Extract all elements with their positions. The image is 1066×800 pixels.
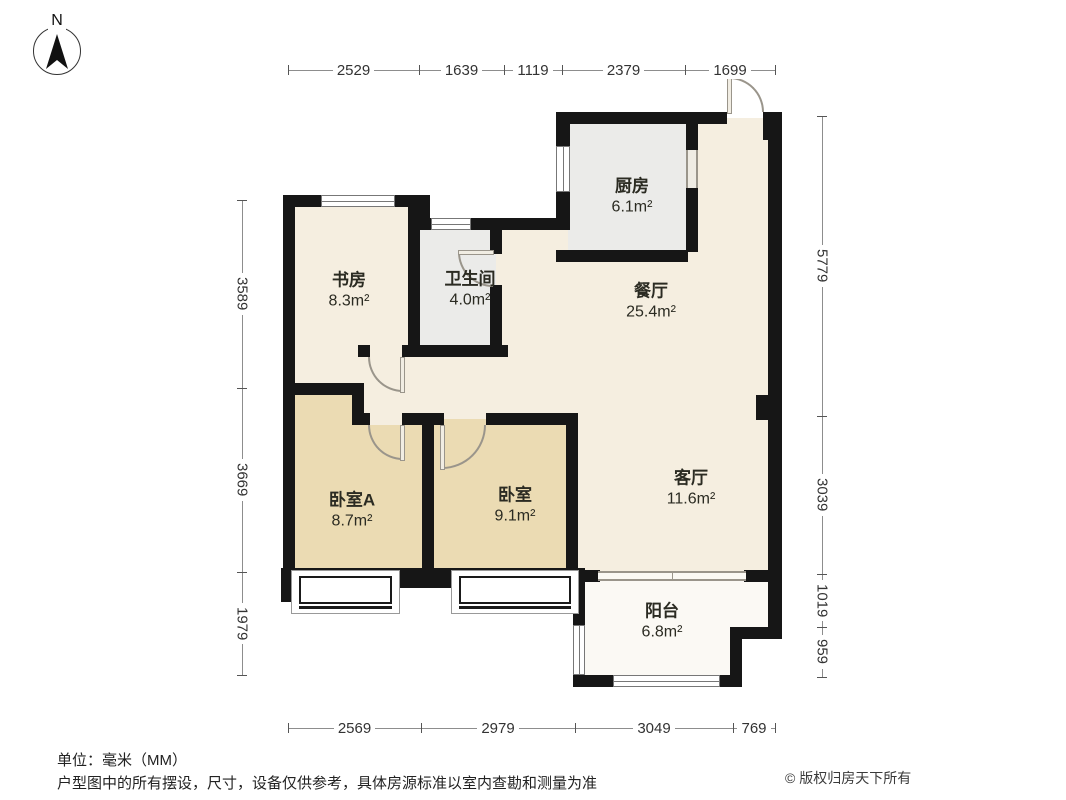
- dimension-tick: [419, 65, 420, 75]
- unit-note: 单位：毫米（MM）: [57, 749, 187, 770]
- wall-segment: [402, 345, 420, 357]
- dimension-label: 2529: [288, 62, 419, 78]
- dimension-tick: [504, 65, 505, 75]
- wall-segment: [422, 413, 434, 580]
- dimension-tick: [237, 572, 247, 573]
- dimension-tick: [733, 723, 734, 733]
- room-area: 8.7m²: [329, 512, 375, 533]
- dimension-tick: [288, 65, 289, 75]
- window: [321, 195, 395, 207]
- room-name: 厨房: [612, 176, 653, 198]
- wall-segment: [686, 186, 698, 252]
- room-area: 9.1m²: [495, 507, 536, 528]
- wall-segment: [408, 207, 420, 357]
- room-label-dining: 餐厅 25.4m²: [626, 281, 676, 324]
- room-name: 客厅: [667, 468, 716, 490]
- dimension-tick: [817, 416, 827, 417]
- dimension-tick: [775, 723, 776, 733]
- room-label-living: 客厅 11.6m²: [667, 468, 716, 511]
- dimension-label: 769: [733, 720, 775, 736]
- dimension-tick: [817, 574, 827, 575]
- room-label-study: 书房 8.3m²: [329, 270, 370, 313]
- dimension-label: 3039: [814, 416, 830, 574]
- wall-segment: [756, 395, 768, 420]
- wall-segment: [422, 413, 444, 425]
- dimension-tick: [237, 388, 247, 389]
- entry-door-arc: [729, 77, 764, 112]
- room-area: 6.1m²: [612, 198, 653, 219]
- wall-segment: [744, 570, 768, 582]
- room-label-bedroom: 卧室 9.1m²: [495, 485, 536, 528]
- room-name: 卫生间: [445, 269, 496, 291]
- copyright-text: © 版权归房天下所有: [785, 768, 911, 788]
- wall-segment: [486, 413, 578, 425]
- dimension-label: 1979: [234, 572, 250, 675]
- room-label-kitchen: 厨房 6.1m²: [612, 176, 653, 219]
- bay-window-sill: [459, 606, 571, 609]
- room-name: 阳台: [642, 601, 683, 623]
- sliding-door-divider: [672, 573, 673, 579]
- entry-door-leaf: [727, 77, 732, 114]
- room-area: 8.3m²: [329, 292, 370, 313]
- bay-window-sill: [299, 606, 392, 609]
- wall-segment: [352, 413, 370, 425]
- dimension-label: 2379: [562, 62, 685, 78]
- balcony-window: [573, 625, 585, 675]
- wall-segment: [768, 112, 782, 639]
- dimension-tick: [775, 65, 776, 75]
- dimension-label: 1019: [814, 574, 830, 627]
- dimension-tick: [685, 65, 686, 75]
- dimension-label: 2569: [288, 720, 421, 736]
- room-area: 11.6m²: [667, 490, 716, 511]
- room-name: 卧室A: [329, 490, 375, 512]
- dimension-label: 3589: [234, 200, 250, 388]
- dimension-tick: [817, 116, 827, 117]
- bay-window: [291, 570, 400, 614]
- dimension-tick: [817, 677, 827, 678]
- dimension-label: 1639: [419, 62, 504, 78]
- dimension-label: 3049: [575, 720, 733, 736]
- room-name: 卧室: [495, 485, 536, 507]
- dimension-tick: [288, 723, 289, 733]
- window: [431, 218, 471, 230]
- wall-segment: [490, 218, 502, 254]
- room-name: 书房: [329, 270, 370, 292]
- bathroom-door-leaf: [458, 250, 494, 255]
- bay-window: [451, 570, 579, 614]
- wall-segment: [556, 112, 727, 124]
- balcony-sliding-door: [598, 571, 746, 581]
- dimension-tick: [421, 723, 422, 733]
- wall-segment: [566, 413, 578, 580]
- room-label-bathroom: 卫生间 4.0m²: [445, 269, 496, 312]
- compass-north-label: N: [48, 12, 66, 30]
- compass-arrow-icon: [33, 27, 81, 75]
- dimension-label: 5779: [814, 116, 830, 416]
- disclaimer-text: 户型图中的所有摆设，尺寸，设备仅供参考，具体房源标准以室内查勘和测量为准: [57, 772, 597, 793]
- dimension-tick: [817, 627, 827, 628]
- bedroom-door-leaf: [440, 425, 445, 470]
- dimension-tick: [575, 723, 576, 733]
- kitchen-sliding-door: [686, 150, 698, 188]
- wall-segment: [556, 250, 688, 262]
- dimension-label: 959: [814, 627, 830, 677]
- bedroom-a-door-leaf: [400, 425, 405, 461]
- study-door-leaf: [400, 357, 405, 393]
- room-area: 6.8m²: [642, 623, 683, 644]
- window: [556, 146, 570, 192]
- dimension-tick: [237, 200, 247, 201]
- bay-window-frame: [299, 576, 392, 604]
- bay-window-frame: [459, 576, 571, 604]
- dimension-label: 1699: [685, 62, 775, 78]
- balcony-window: [613, 675, 720, 687]
- dimension-label: 1119: [504, 62, 562, 78]
- wall-segment: [358, 345, 370, 357]
- wall-segment: [718, 675, 742, 687]
- room-label-bedroom-a: 卧室A 8.7m²: [329, 490, 375, 533]
- dimension-tick: [237, 675, 247, 676]
- wall-segment: [686, 124, 698, 152]
- room-area: 25.4m²: [626, 303, 676, 324]
- wall-segment: [578, 570, 600, 582]
- room-name: 餐厅: [626, 281, 676, 303]
- dimension-label: 2979: [421, 720, 575, 736]
- room-area: 4.0m²: [445, 291, 496, 312]
- room-label-balcony: 阳台 6.8m²: [642, 601, 683, 644]
- dimension-tick: [562, 65, 563, 75]
- dimension-label: 3669: [234, 388, 250, 572]
- floor-plan-canvas: N: [0, 0, 1066, 800]
- wall-segment: [283, 383, 358, 395]
